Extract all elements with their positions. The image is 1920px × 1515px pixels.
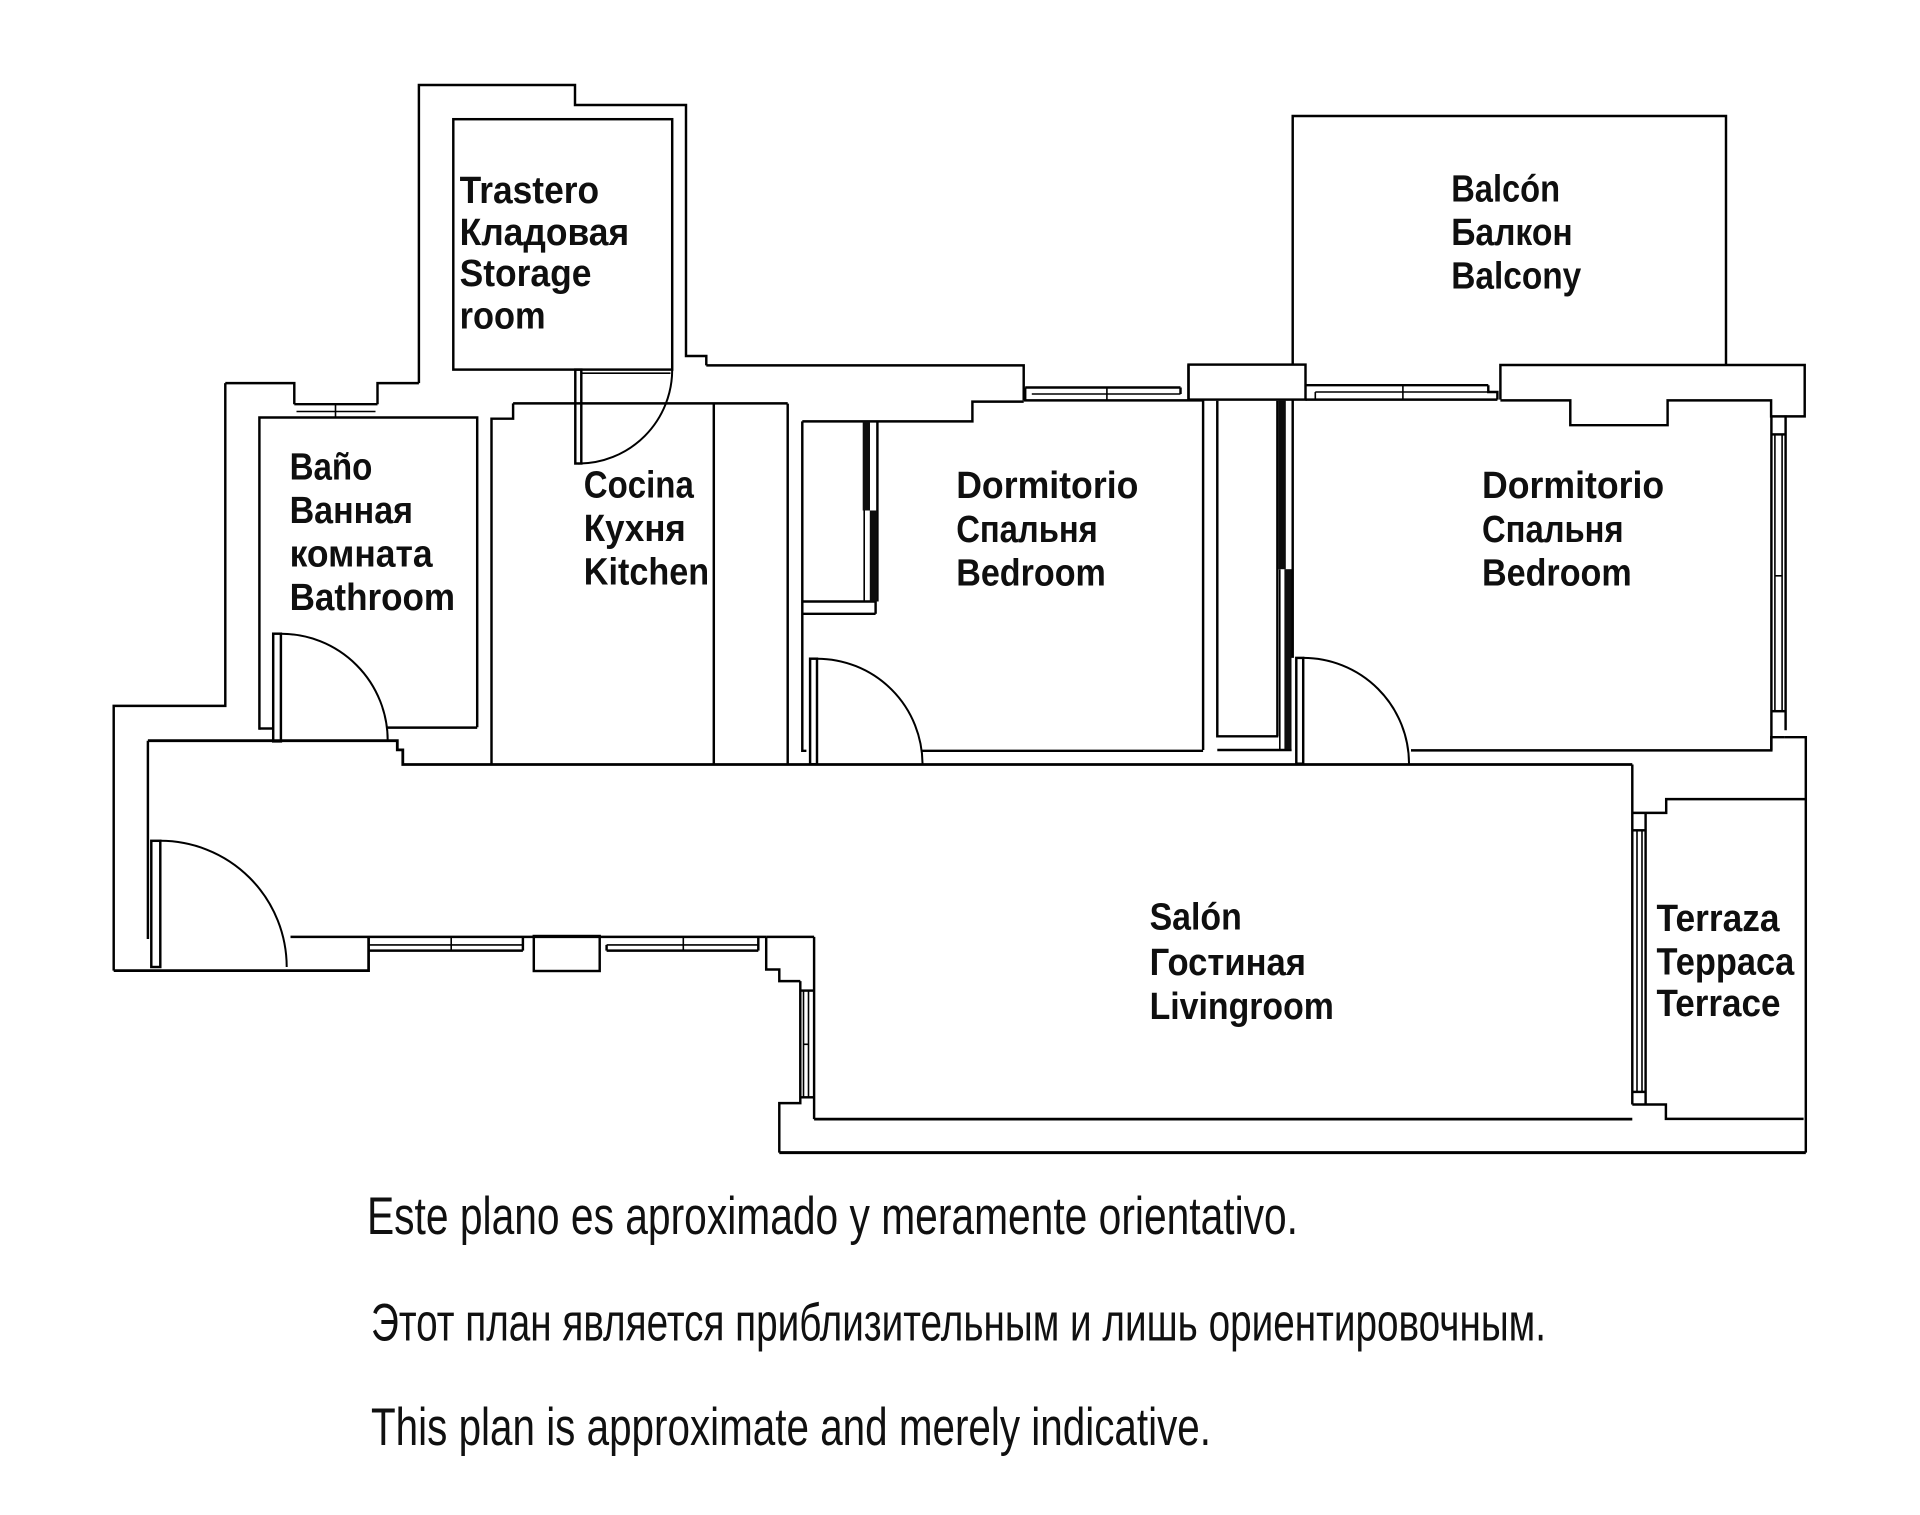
svg-text:Cocina: Cocina <box>584 465 695 507</box>
svg-text:Спальня: Спальня <box>1482 509 1624 551</box>
svg-text:Гостиная: Гостиная <box>1150 942 1306 984</box>
svg-text:Кладовая: Кладовая <box>460 212 629 254</box>
svg-text:комната: комната <box>290 534 434 576</box>
svg-text:Теppaca: Теppaca <box>1657 941 1796 983</box>
svg-text:Storage: Storage <box>460 253 592 295</box>
svg-text:Terrace: Terrace <box>1657 983 1781 1025</box>
svg-text:Bedroom: Bedroom <box>956 552 1106 594</box>
svg-text:Dormitorio: Dormitorio <box>1482 465 1664 507</box>
svg-text:Dormitorio: Dormitorio <box>956 465 1138 507</box>
svg-text:Baño: Baño <box>290 446 373 488</box>
svg-text:Спальня: Спальня <box>956 509 1098 551</box>
svg-text:Balcony: Balcony <box>1451 255 1581 297</box>
svg-text:Kitchen: Kitchen <box>584 551 709 593</box>
svg-text:This plan is approximate and m: This plan is approximate and merely indi… <box>371 1398 1211 1457</box>
svg-text:Кухня: Кухня <box>584 508 686 550</box>
svg-text:Bedroom: Bedroom <box>1482 552 1632 594</box>
svg-text:Bathroom: Bathroom <box>290 577 456 619</box>
svg-text:Livingroom: Livingroom <box>1150 986 1334 1028</box>
svg-text:Este plano es aproximado y mer: Este plano es aproximado y meramente ori… <box>367 1187 1298 1246</box>
svg-text:Terraza: Terraza <box>1657 898 1781 940</box>
svg-text:Salón: Salón <box>1150 897 1242 939</box>
svg-text:room: room <box>460 296 546 338</box>
svg-text:Trastero: Trastero <box>460 170 599 212</box>
svg-text:Балкон: Балкон <box>1451 212 1573 254</box>
svg-text:Ванная: Ванная <box>290 490 413 532</box>
svg-text:Balcón: Balcón <box>1451 168 1560 210</box>
svg-text:Этот план является приблизител: Этот план является приблизительным и лиш… <box>371 1294 1546 1353</box>
